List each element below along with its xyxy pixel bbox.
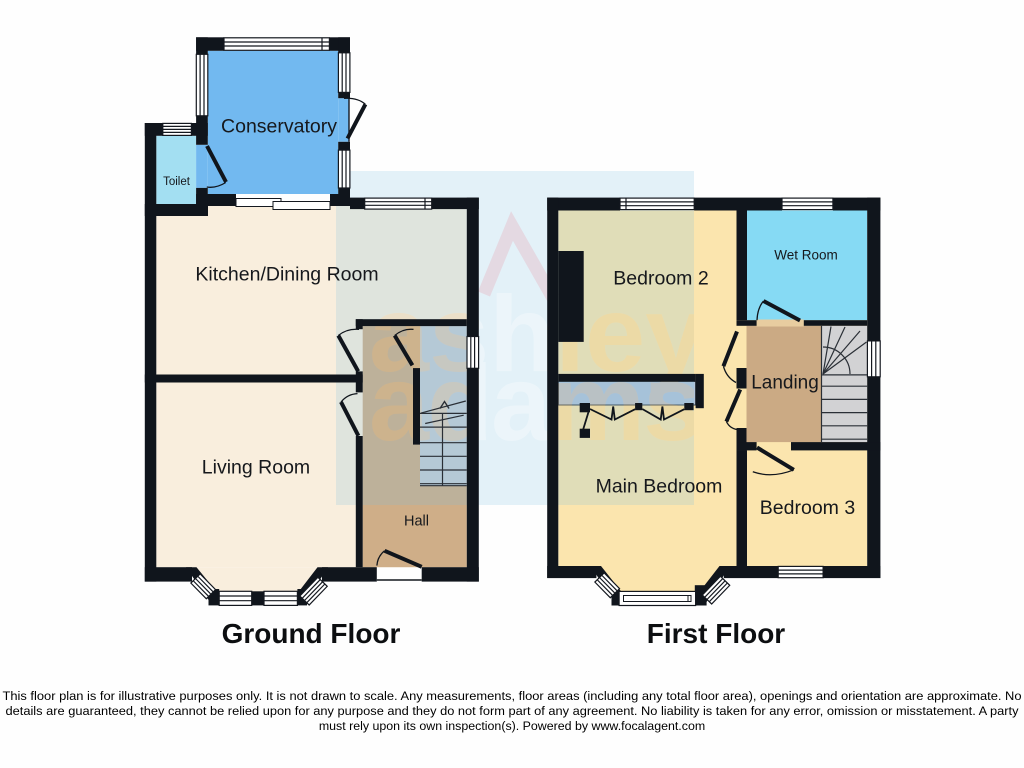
svg-text:Wet Room: Wet Room <box>774 248 838 263</box>
svg-text:Kitchen/Dining Room: Kitchen/Dining Room <box>195 264 378 286</box>
svg-text:Hall: Hall <box>404 514 429 530</box>
svg-text:details are guaranteed, they c: details are guaranteed, they cannot be r… <box>6 704 1020 718</box>
svg-text:First Floor: First Floor <box>647 618 786 649</box>
svg-text:Landing: Landing <box>751 373 819 394</box>
svg-text:Bedroom 3: Bedroom 3 <box>760 497 855 519</box>
svg-text:Ground Floor: Ground Floor <box>222 618 401 649</box>
svg-text:This floor plan is for illustr: This floor plan is for illustrative purp… <box>3 689 1022 703</box>
svg-text:Toilet: Toilet <box>163 176 191 188</box>
svg-text:Conservatory: Conservatory <box>221 116 337 138</box>
svg-text:Bedroom 2: Bedroom 2 <box>613 268 708 290</box>
svg-text:must rely upon its own inspect: must rely upon its own inspection(s). Po… <box>319 719 705 733</box>
svg-text:Main Bedroom: Main Bedroom <box>596 476 723 498</box>
svg-text:Living Room: Living Room <box>202 457 310 479</box>
